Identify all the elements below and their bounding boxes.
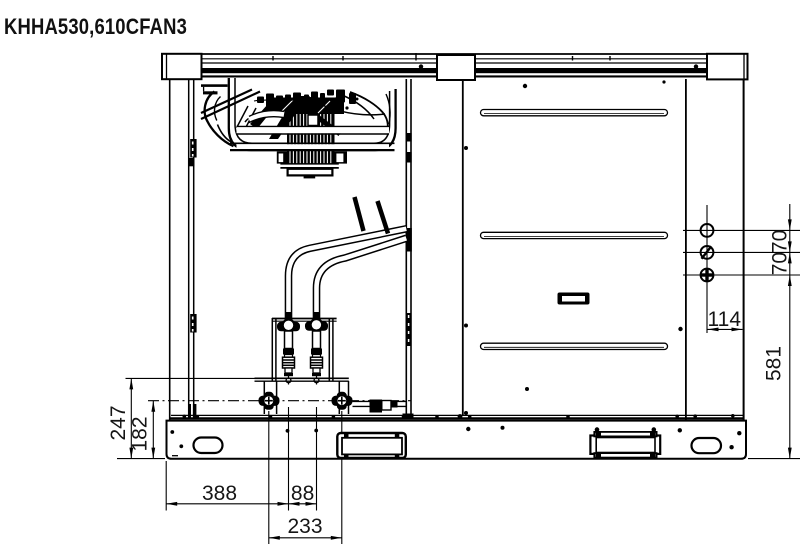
svg-text:70: 70 (769, 230, 792, 253)
svg-text:182: 182 (129, 416, 152, 451)
svg-text:114: 114 (708, 308, 742, 331)
svg-text:233: 233 (287, 515, 322, 538)
svg-text:388: 388 (202, 482, 237, 505)
svg-text:247: 247 (107, 405, 130, 440)
svg-text:70: 70 (769, 252, 792, 275)
svg-text:KHHA530,610CFAN3: KHHA530,610CFAN3 (4, 14, 187, 39)
svg-text:581: 581 (763, 346, 786, 381)
svg-text:88: 88 (291, 482, 314, 505)
